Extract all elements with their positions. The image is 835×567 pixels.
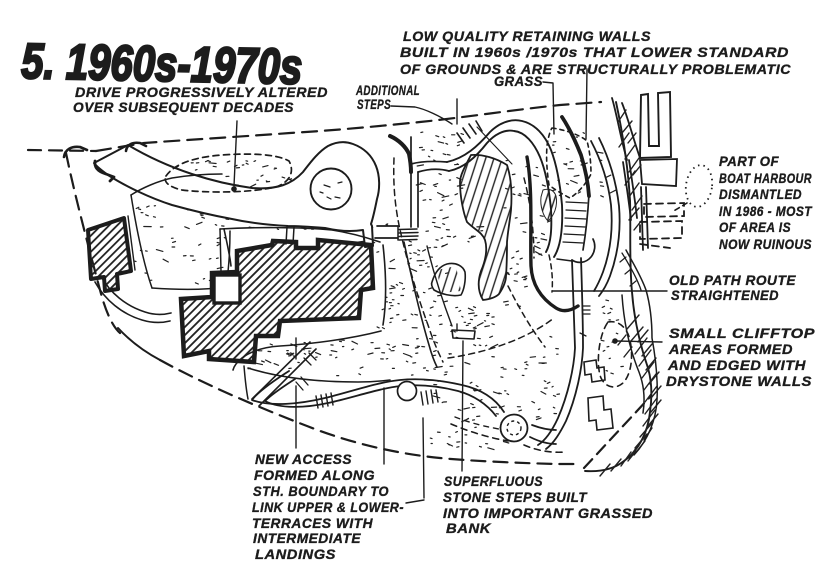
svg-text:LOW QUALITY RETAINING WALLS: LOW QUALITY RETAINING WALLS <box>403 29 651 44</box>
svg-text:AND EDGED WITH: AND EDGED WITH <box>667 358 806 373</box>
svg-text:NOW RUINOUS: NOW RUINOUS <box>719 237 812 252</box>
svg-text:INTO IMPORTANT GRASSED: INTO IMPORTANT GRASSED <box>443 506 653 521</box>
svg-text:OF GROUNDS & ARE STRUCTURALLY: OF GROUNDS & ARE STRUCTURALLY PROBLEMATI… <box>400 62 791 77</box>
svg-text:TERRACES WITH: TERRACES WITH <box>252 516 373 531</box>
svg-text:DRIVE PROGRESSIVELY ALTERED: DRIVE PROGRESSIVELY ALTERED <box>75 85 328 100</box>
svg-text:STEPS: STEPS <box>357 97 391 112</box>
svg-text:LINK UPPER & LOWER-: LINK UPPER & LOWER- <box>252 500 404 515</box>
svg-text:LANDINGS: LANDINGS <box>255 547 336 562</box>
svg-text:STONE STEPS BUILT: STONE STEPS BUILT <box>443 490 588 505</box>
svg-text:STRAIGHTENED: STRAIGHTENED <box>671 288 779 303</box>
svg-text:SUPERFLUOUS: SUPERFLUOUS <box>444 474 543 489</box>
svg-text:SMALL CLIFFTOP: SMALL CLIFFTOP <box>669 326 816 341</box>
svg-text:BANK: BANK <box>446 521 492 536</box>
svg-text:DRYSTONE WALLS: DRYSTONE WALLS <box>666 374 812 389</box>
svg-text:GRASS: GRASS <box>494 74 543 89</box>
svg-text:PART OF: PART OF <box>719 154 779 169</box>
svg-text:IN 1986 - MOST: IN 1986 - MOST <box>719 204 813 219</box>
svg-text:NEW ACCESS: NEW ACCESS <box>255 452 352 467</box>
svg-text:OF AREA IS: OF AREA IS <box>719 220 791 235</box>
svg-text:AREAS FORMED: AREAS FORMED <box>668 342 793 357</box>
svg-text:INTERMEDIATE: INTERMEDIATE <box>253 531 362 546</box>
svg-text:BUILT IN 1960s /1970s THAT LOW: BUILT IN 1960s /1970s THAT LOWER STANDAR… <box>400 45 789 60</box>
svg-text:OLD PATH ROUTE: OLD PATH ROUTE <box>669 273 796 288</box>
svg-text:BOAT HARBOUR: BOAT HARBOUR <box>719 171 812 186</box>
svg-text:DISMANTLED: DISMANTLED <box>719 187 802 202</box>
svg-text:ADDITIONAL: ADDITIONAL <box>355 83 420 98</box>
svg-text:FORMED ALONG: FORMED ALONG <box>254 468 375 483</box>
svg-text:STH. BOUNDARY TO: STH. BOUNDARY TO <box>253 484 389 499</box>
svg-text:OVER SUBSEQUENT DECADES: OVER SUBSEQUENT DECADES <box>73 100 294 115</box>
